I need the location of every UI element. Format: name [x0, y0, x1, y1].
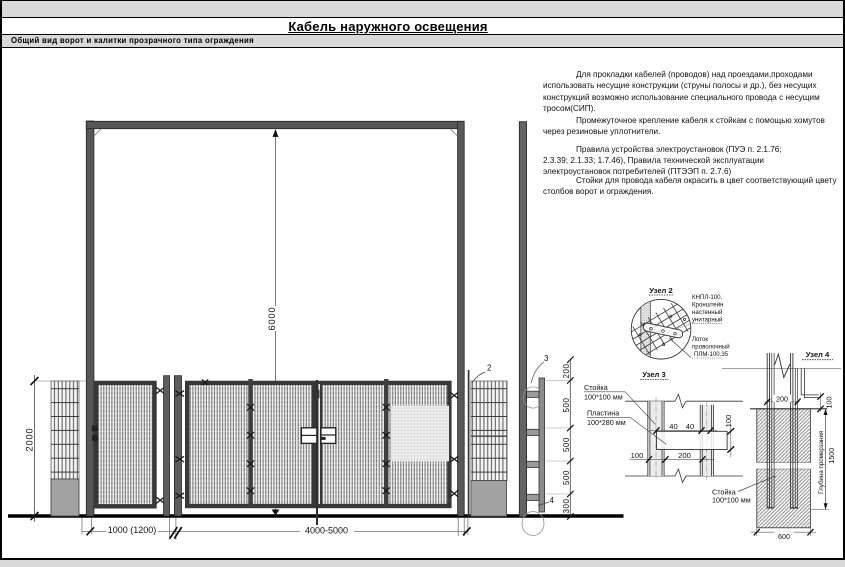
svg-text:500: 500 [562, 470, 571, 485]
svg-text:200: 200 [678, 451, 691, 460]
svg-text:500: 500 [562, 437, 571, 452]
svg-text:100*280 мм: 100*280 мм [587, 418, 626, 427]
svg-text:40: 40 [686, 422, 694, 431]
svg-text:100: 100 [631, 451, 644, 460]
svg-text:4000-5000: 4000-5000 [305, 526, 348, 536]
svg-text:КНПЛ-100.: КНПЛ-100. [692, 294, 723, 301]
svg-text:200: 200 [776, 394, 788, 403]
svg-text:300: 300 [562, 499, 571, 514]
svg-text:6000: 6000 [267, 307, 277, 331]
svg-text:40: 40 [669, 422, 677, 431]
svg-text:2: 2 [487, 364, 492, 373]
svg-text:100: 100 [724, 415, 733, 428]
svg-text:унитарный: унитарный [692, 317, 722, 324]
svg-text:настенный: настенный [692, 309, 722, 316]
svg-text:Кронштейн: Кронштейн [692, 302, 723, 309]
svg-text:Стойка: Стойка [584, 383, 608, 392]
svg-text:100*100 мм: 100*100 мм [584, 393, 623, 402]
svg-text:2000: 2000 [25, 428, 35, 452]
svg-text:Узел 3: Узел 3 [642, 370, 665, 379]
svg-text:Узел 2: Узел 2 [649, 286, 672, 295]
svg-text:200: 200 [562, 364, 571, 379]
svg-text:100: 100 [825, 397, 834, 409]
svg-text:1500: 1500 [827, 448, 836, 464]
svg-text:4: 4 [550, 496, 555, 505]
svg-text:Лоток: Лоток [692, 336, 708, 343]
svg-text:600: 600 [778, 532, 790, 541]
svg-text:Глубина промерзания: Глубина промерзания [818, 431, 825, 494]
svg-text:500: 500 [562, 398, 571, 413]
svg-text:100*100 мм: 100*100 мм [712, 496, 751, 505]
svg-text:3: 3 [544, 354, 549, 363]
svg-text:1000 (1200): 1000 (1200) [108, 525, 157, 535]
svg-text:ПЛМ-100.35: ПЛМ-100.35 [694, 351, 729, 358]
svg-text:Узел 4: Узел 4 [806, 350, 830, 359]
svg-text:Пластина: Пластина [587, 409, 619, 418]
svg-text:проволочный: проволочный [692, 344, 730, 351]
